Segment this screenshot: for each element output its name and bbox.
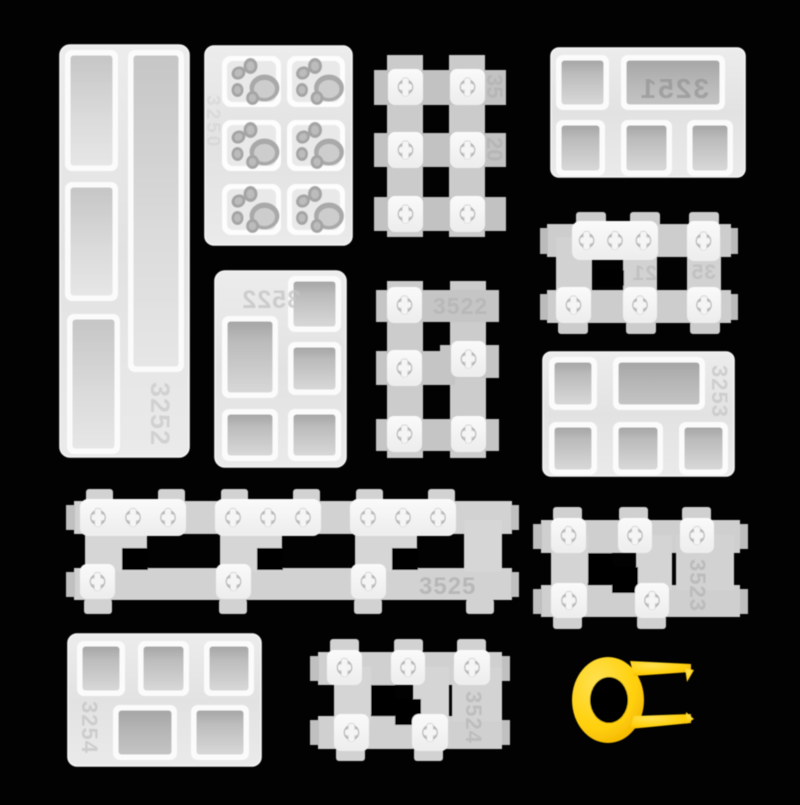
svg-text:3522: 3522 — [433, 293, 488, 319]
svg-text:3253: 3253 — [707, 365, 732, 418]
svg-text:3250: 3250 — [202, 95, 223, 149]
svg-text:3252: 3252 — [145, 382, 175, 446]
svg-text:20: 20 — [482, 137, 507, 161]
svg-text:3523: 3523 — [685, 559, 710, 612]
svg-text:35: 35 — [482, 74, 507, 98]
svg-text:35: 35 — [691, 261, 716, 284]
svg-text:3524: 3524 — [461, 691, 486, 744]
svg-text:3525: 3525 — [419, 573, 476, 600]
svg-text:3251: 3251 — [639, 73, 709, 104]
svg-text:3522: 3522 — [241, 286, 301, 314]
svg-text:3254: 3254 — [77, 701, 102, 754]
svg-text:21: 21 — [632, 262, 657, 285]
